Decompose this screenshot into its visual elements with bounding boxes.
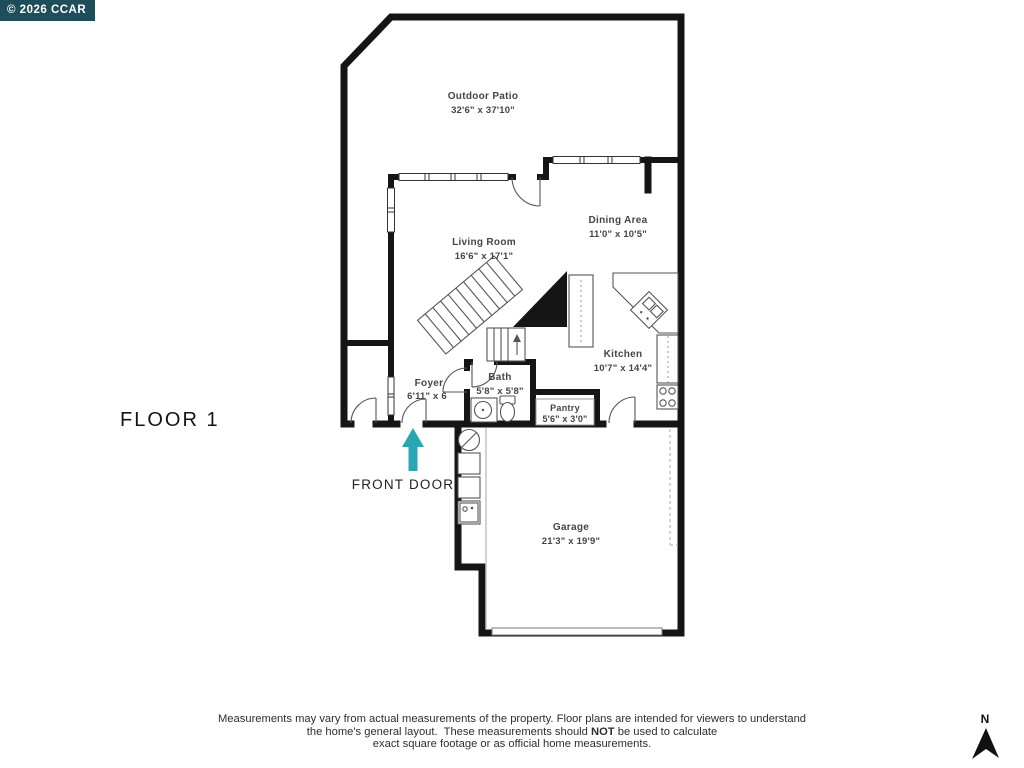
label-foyer: Foyer: [415, 378, 444, 389]
label-pantry: Pantry: [550, 403, 580, 413]
garage-hall-door: [609, 397, 635, 423]
label-dining-area: Dining Area: [588, 215, 647, 226]
toilet-icon: [500, 396, 515, 422]
label-bath: Bath: [488, 372, 511, 383]
garage-door: [492, 628, 662, 635]
bath-fixtures: [471, 396, 515, 422]
label-garage: Garage: [553, 522, 589, 533]
storage-box: [458, 453, 480, 474]
dims-dining-area: 11'0" x 10'5": [589, 229, 647, 240]
foyer-window-left: [388, 377, 394, 415]
kitchen-fixtures: [613, 273, 678, 409]
staircase: [418, 256, 593, 361]
stove-icon: [657, 385, 678, 409]
label-kitchen: Kitchen: [604, 349, 643, 360]
foyer-closet-door: [443, 368, 467, 392]
dims-living-room: 16'6" x 17'1": [455, 251, 513, 262]
disclaimer-line-1: Measurements may vary from actual measur…: [192, 713, 832, 726]
disclaimer-line-3: exact square footage or as official home…: [192, 738, 832, 751]
water-heater-icon: [459, 430, 480, 451]
living-room-window-top: [399, 174, 508, 181]
dims-pantry: 5'6" x 3'0": [542, 414, 587, 424]
dims-bath: 5'8" x 5'8": [476, 386, 523, 397]
compass-needle-icon: [972, 728, 999, 759]
disclaimer-text: Measurements may vary from actual measur…: [192, 713, 832, 751]
front-door-swing: [402, 399, 426, 423]
living-room-window-left: [388, 188, 395, 232]
bath-sink-icon: [471, 398, 497, 422]
stair-landing-fill: [513, 271, 567, 327]
front-door-label: FRONT DOOR: [338, 477, 468, 492]
dims-foyer: 6'11" x 6: [407, 391, 447, 402]
dining-area-window-top: [553, 157, 640, 164]
dims-outdoor-patio: 32'6" x 37'10": [451, 105, 515, 116]
north-arrow: N: [972, 712, 999, 759]
label-living-room: Living Room: [452, 237, 516, 248]
dims-garage: 21'3" x 19'9": [542, 536, 600, 547]
floor-plan-svg: Outdoor Patio 32'6" x 37'10" Living Room…: [0, 0, 1024, 768]
front-door-arrow: [402, 428, 424, 471]
dims-kitchen: 10'7" x 14'4": [594, 363, 652, 374]
label-outdoor-patio: Outdoor Patio: [448, 91, 519, 102]
disclaimer-line-2: the home's general layout. These measure…: [192, 726, 832, 739]
patio-gate-door: [351, 398, 376, 423]
compass-n-label: N: [981, 712, 990, 726]
living-room-patio-door: [512, 177, 540, 206]
laundry-machine-icon: [458, 501, 480, 524]
stair-railing: [569, 275, 593, 347]
